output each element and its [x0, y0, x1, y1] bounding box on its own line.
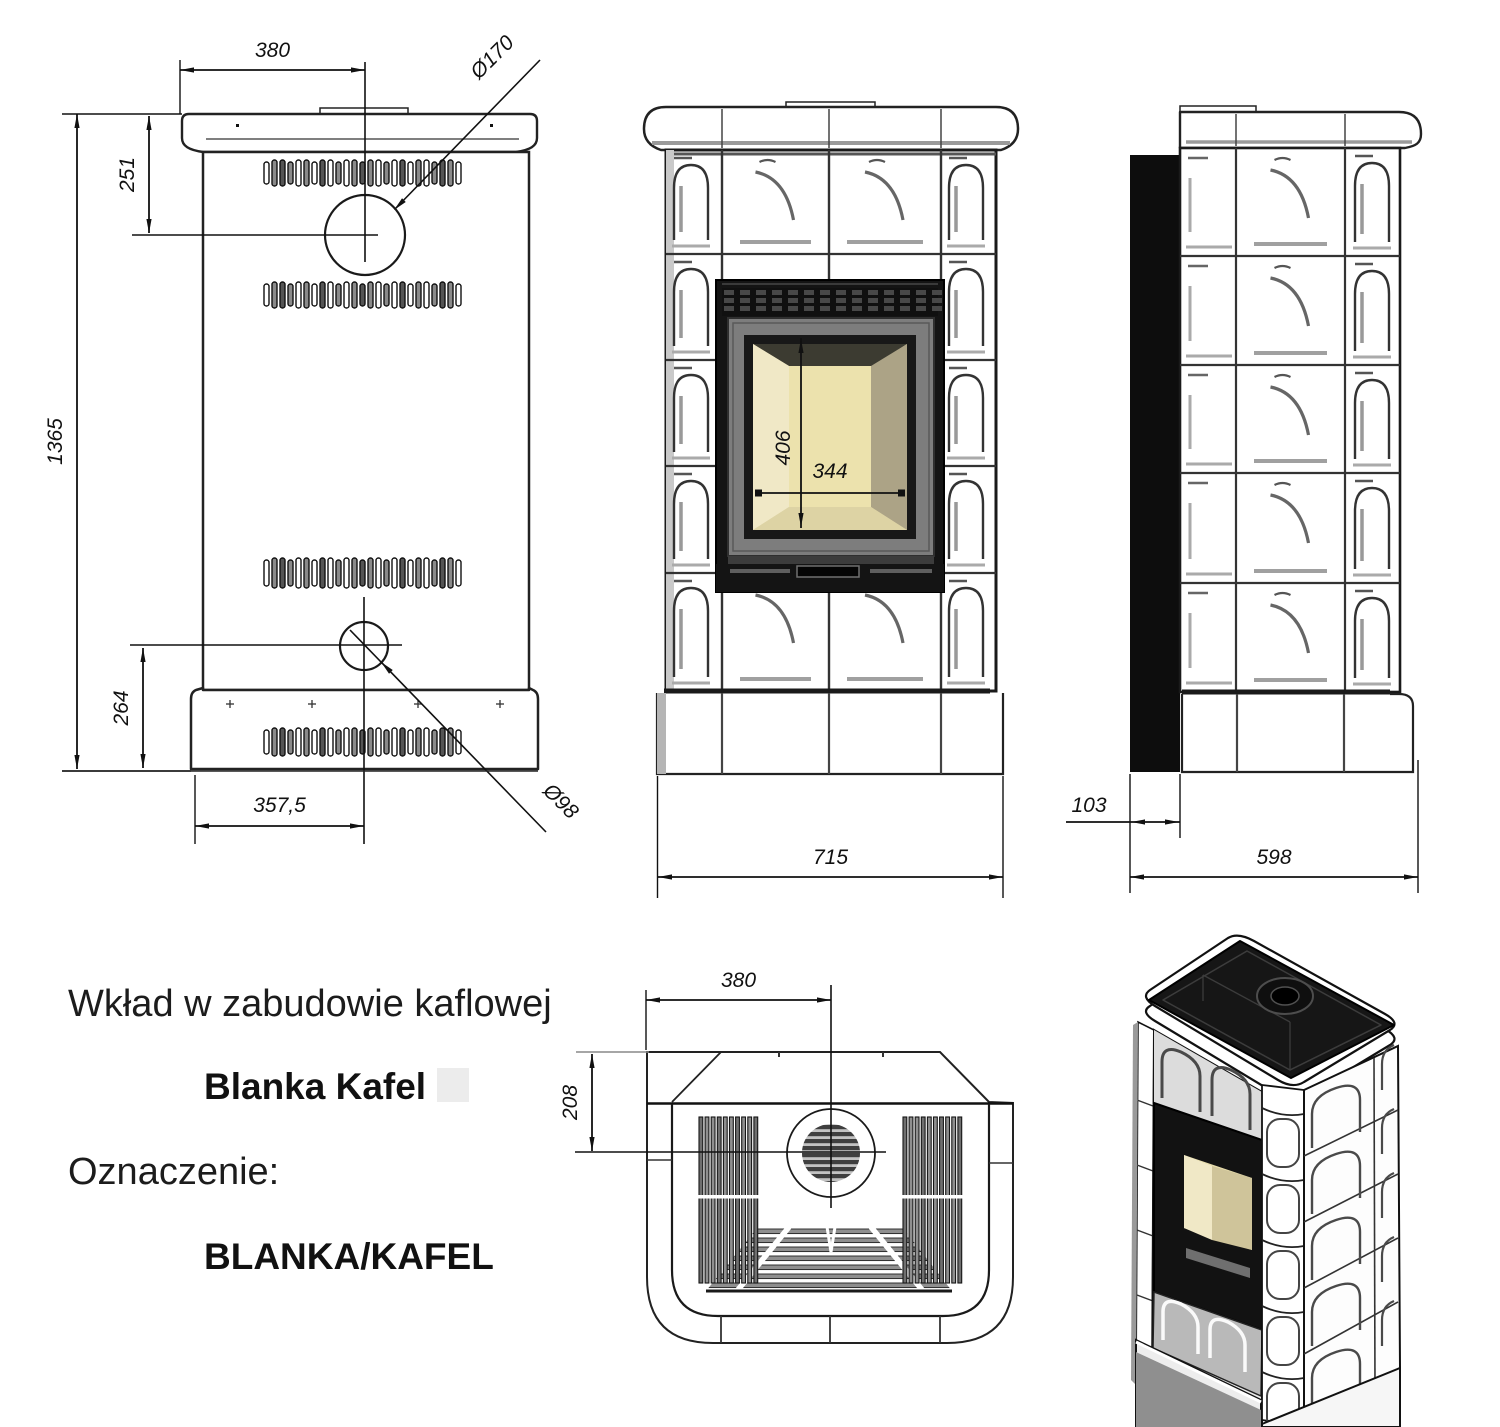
- svg-text:380: 380: [721, 969, 756, 992]
- svg-text:357,5: 357,5: [253, 794, 306, 817]
- svg-text:264: 264: [110, 690, 133, 726]
- svg-text:715: 715: [813, 846, 848, 869]
- svg-text:598: 598: [1256, 846, 1291, 869]
- svg-text:344: 344: [812, 460, 847, 483]
- svg-text:BLANKA/KAFEL: BLANKA/KAFEL: [204, 1236, 494, 1277]
- svg-text:406: 406: [772, 430, 795, 465]
- svg-text:251: 251: [116, 157, 139, 193]
- svg-text:103: 103: [1071, 794, 1106, 817]
- svg-text:Blanka Kafel: Blanka Kafel: [204, 1066, 426, 1107]
- svg-text:380: 380: [255, 39, 290, 62]
- svg-text:Oznaczenie:: Oznaczenie:: [68, 1151, 279, 1193]
- svg-text:208: 208: [559, 1085, 582, 1121]
- svg-text:1365: 1365: [44, 418, 67, 465]
- svg-text:Wkład w zabudowie kaflowej: Wkład w zabudowie kaflowej: [68, 983, 552, 1025]
